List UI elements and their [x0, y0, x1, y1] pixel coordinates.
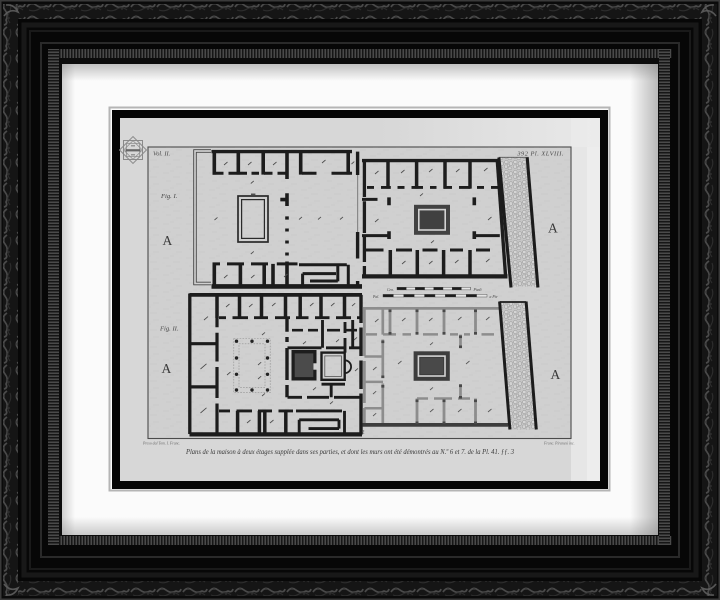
svg-text:Plans de la maison à deux étag: Plans de la maison à deux étages supplée…	[185, 447, 514, 456]
svg-text:Franc. Piranesi inc.: Franc. Piranesi inc.	[543, 442, 575, 446]
svg-text:Vol. II.: Vol. II.	[153, 151, 171, 158]
svg-text:Piedi: Piedi	[473, 288, 482, 292]
svg-text:a Pie: a Pie	[490, 295, 498, 299]
svg-text:Preso dal Tom. I. Franc.: Preso dal Tom. I. Franc.	[142, 442, 180, 446]
svg-text:A: A	[548, 221, 558, 236]
svg-text:392 Pl. XLVIII.: 392 Pl. XLVIII.	[516, 151, 564, 158]
svg-text:A: A	[163, 233, 173, 248]
svg-text:Cen.: Cen.	[387, 288, 394, 292]
svg-text:Pal.: Pal.	[372, 295, 379, 299]
svg-text:Fig. II.: Fig. II.	[159, 326, 179, 333]
svg-text:A: A	[551, 367, 561, 382]
svg-text:A: A	[162, 361, 172, 376]
svg-text:Fig. I.: Fig. I.	[160, 193, 178, 200]
